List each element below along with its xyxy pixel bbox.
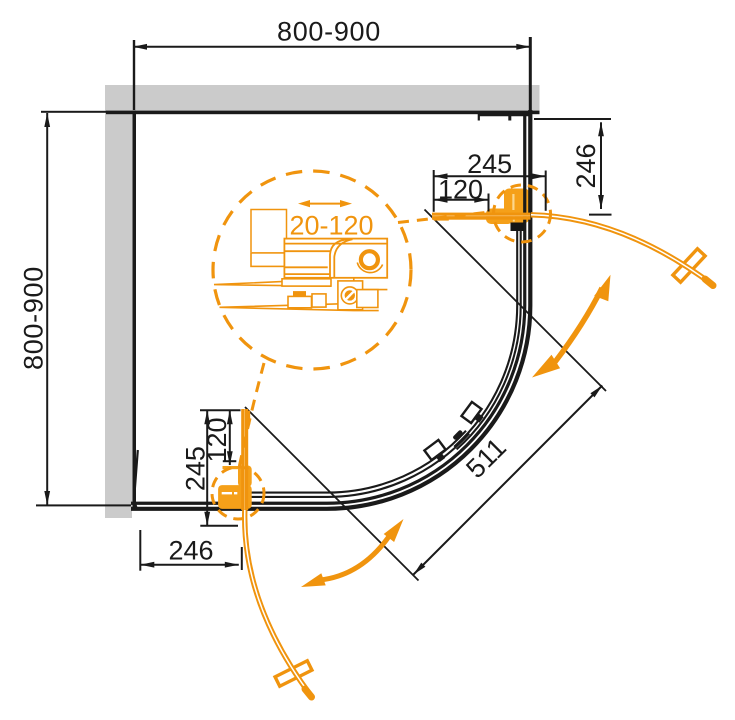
svg-text:511: 511: [460, 432, 512, 484]
svg-text:20-120: 20-120: [289, 211, 373, 241]
svg-text:120: 120: [438, 174, 483, 204]
svg-text:246: 246: [571, 143, 601, 188]
svg-text:246: 246: [168, 536, 213, 566]
svg-text:800-900: 800-900: [19, 266, 49, 370]
svg-text:800-900: 800-900: [277, 17, 381, 47]
svg-text:120: 120: [202, 417, 232, 462]
